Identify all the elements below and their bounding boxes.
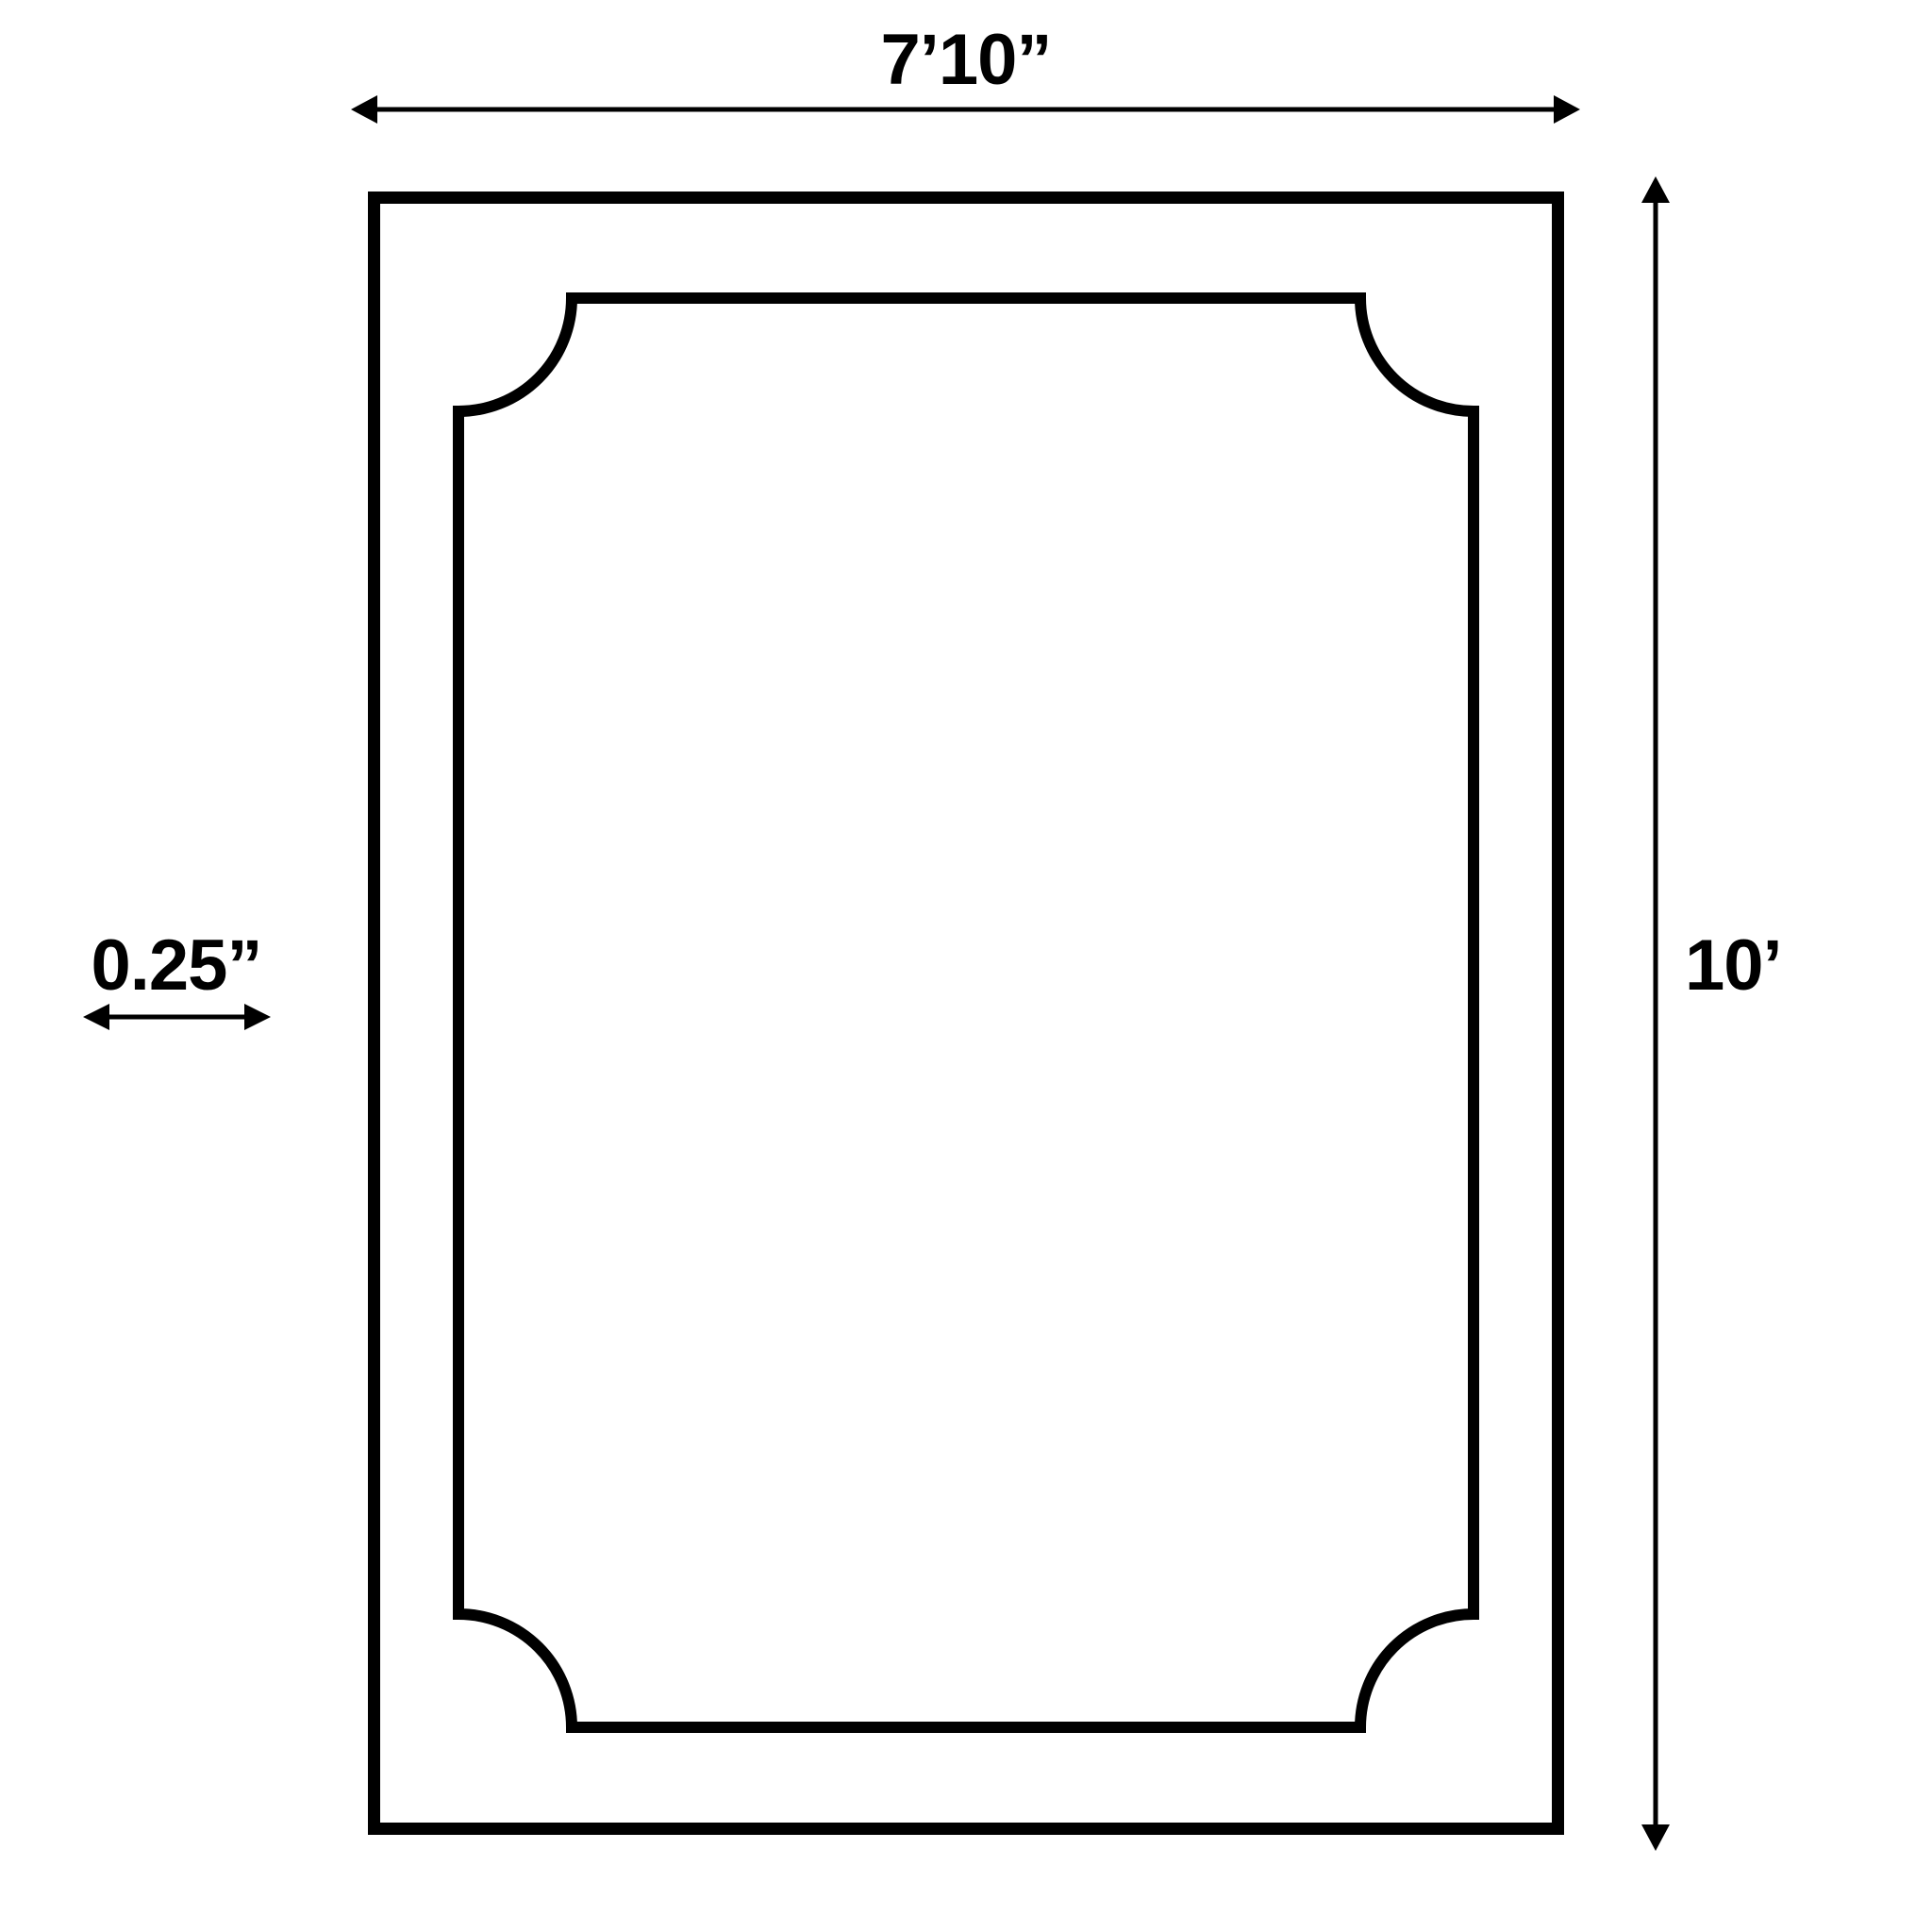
thickness-dimension-arrow (83, 1004, 271, 1030)
height-dimension-arrow (1641, 176, 1670, 1851)
inner-scalloped-border (458, 298, 1474, 1727)
thickness-dimension-label: 0.25” (11, 930, 341, 1002)
outer-border (375, 198, 1558, 1829)
arrow-left-icon (351, 95, 377, 124)
arrow-right-icon (244, 1004, 271, 1030)
arrow-right-icon (1554, 95, 1580, 124)
arrow-up-icon (1641, 176, 1670, 203)
height-dimension-label: 10’ (1685, 930, 1782, 1002)
width-dimension-label: 7’10” (0, 25, 1932, 96)
arrow-left-icon (83, 1004, 109, 1030)
dimension-diagram: 7’10” 10’ 0.25” (0, 0, 1932, 1932)
arrow-down-icon (1641, 1824, 1670, 1851)
